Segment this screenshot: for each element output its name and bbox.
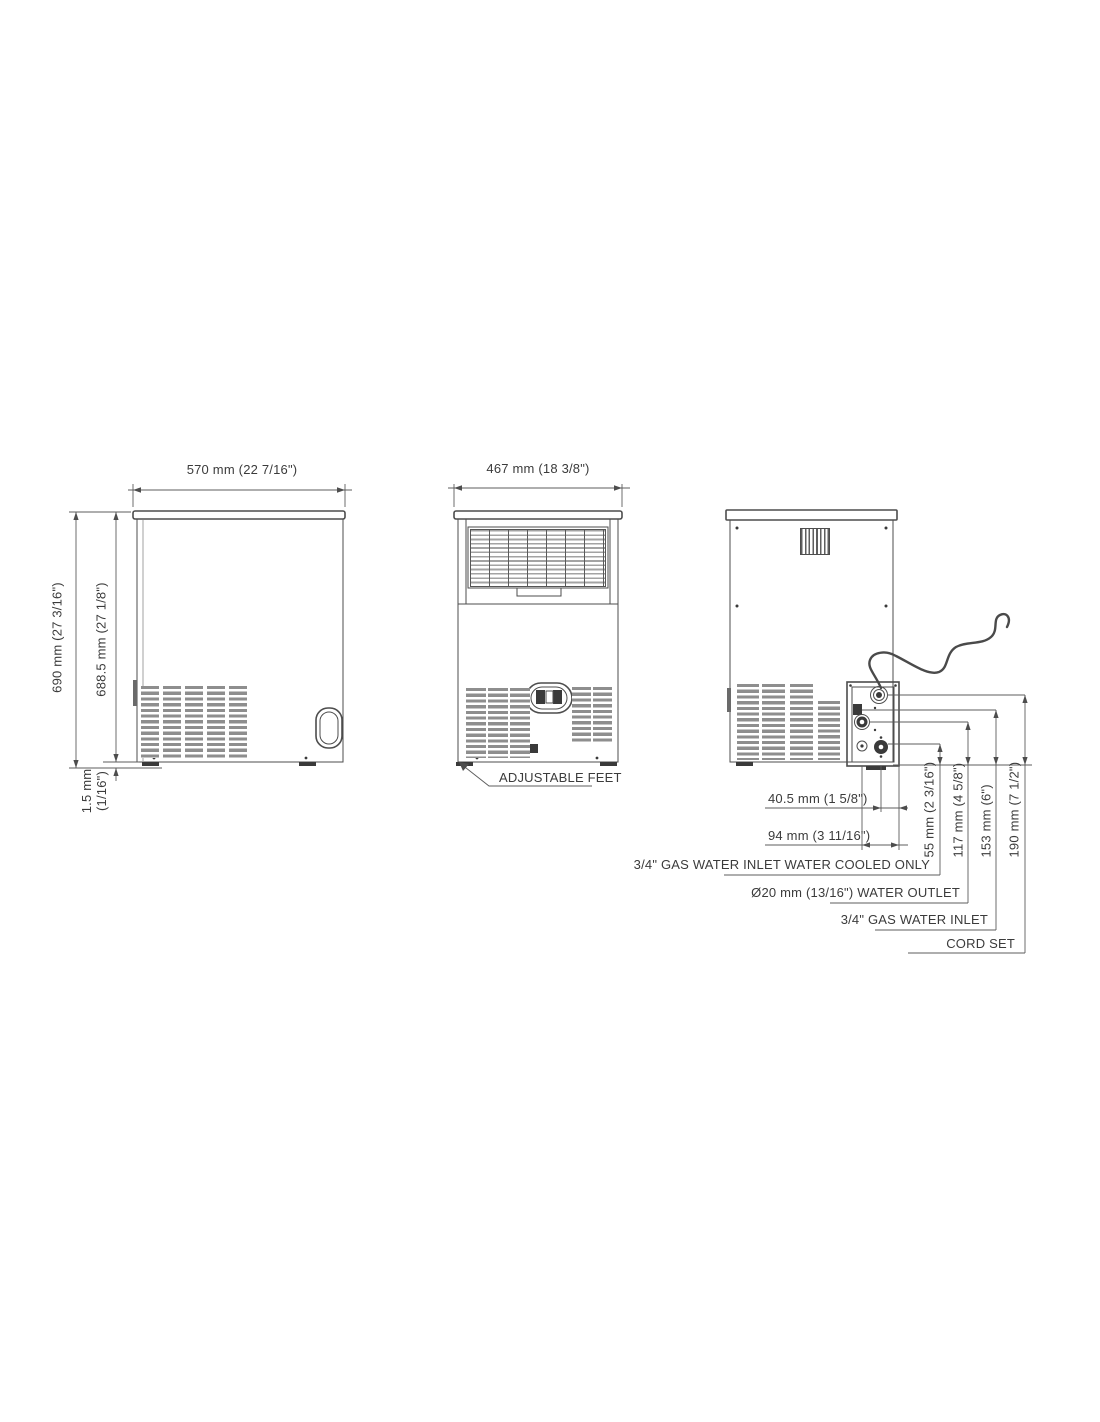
front-width-dimension: 467 mm (18 3/8") [438, 461, 638, 476]
rear-vent-column [762, 684, 785, 760]
small-fitting [857, 741, 867, 751]
rear-vent-column [790, 684, 813, 760]
technical-drawing-page: 570 mm (22 7/16") 690 mm (27 3/16") 688.… [0, 0, 1100, 1422]
side-vent-column [185, 686, 203, 758]
side-vent-column [207, 686, 225, 758]
side-feet [142, 757, 316, 766]
power-cord [869, 614, 1009, 688]
side-inner-height-dimension: 688.5 mm (27 1/8") [94, 520, 109, 760]
water-outlet-fitting [855, 715, 870, 730]
side-vent-column [163, 686, 181, 758]
rear-height-dimension-117: 117 mm (4 5/8") [951, 738, 966, 858]
front-vent-column [593, 687, 612, 744]
side-height-dimension: 690 mm (27 3/16") [50, 518, 65, 758]
front-vent-column [488, 688, 508, 758]
water-inlet-fitting [874, 736, 888, 758]
rear-offset-dimension-94: 94 mm (3 11/16") [768, 828, 870, 843]
base-gap-line1: 1.5 mm [79, 749, 94, 833]
label-water-outlet: Ø20 mm (13/16") WATER OUTLET [660, 885, 960, 900]
front-vent-column [572, 687, 591, 744]
rear-height-dimension-153: 153 mm (6") [979, 738, 994, 858]
front-logo-badge [526, 683, 572, 713]
label-cord-set: CORD SET [715, 936, 1015, 951]
side-vent-column [229, 686, 247, 758]
label-gas-water-inlet: 3/4" GAS WATER INLET [688, 912, 988, 927]
side-hinge-bracket [133, 680, 137, 706]
front-louver-grille [470, 529, 606, 587]
rear-height-dimension-190: 190 mm (7 1/2") [1007, 738, 1022, 858]
cord-gland-fitting [871, 687, 888, 704]
base-gap-line2: (1/16") [94, 749, 109, 833]
side-vent-column [141, 686, 159, 758]
rear-top-vent [800, 528, 830, 555]
front-handle-notch [517, 588, 561, 596]
rear-vent-column [737, 684, 759, 760]
rear-hinge-bracket [727, 688, 731, 712]
label-gas-water-inlet-water-cooled: 3/4" GAS WATER INLET WATER COOLED ONLY [630, 857, 930, 872]
rear-height-dimension-55: 55 mm (2 3/16") [922, 738, 937, 858]
rear-vent-column [818, 701, 840, 760]
side-base-gap-dimension: 1.5 mm (1/16") [79, 749, 111, 833]
electrical-connector [853, 704, 862, 715]
adjustable-feet-label: ADJUSTABLE FEET [499, 770, 622, 785]
rear-offset-dimension-40: 40.5 mm (1 5/8") [768, 791, 868, 806]
side-width-dimension: 570 mm (22 7/16") [139, 462, 345, 477]
side-drain-obround [316, 708, 342, 748]
front-vent-column [466, 688, 486, 758]
front-vent-column [510, 688, 530, 758]
front-feet [456, 757, 617, 766]
